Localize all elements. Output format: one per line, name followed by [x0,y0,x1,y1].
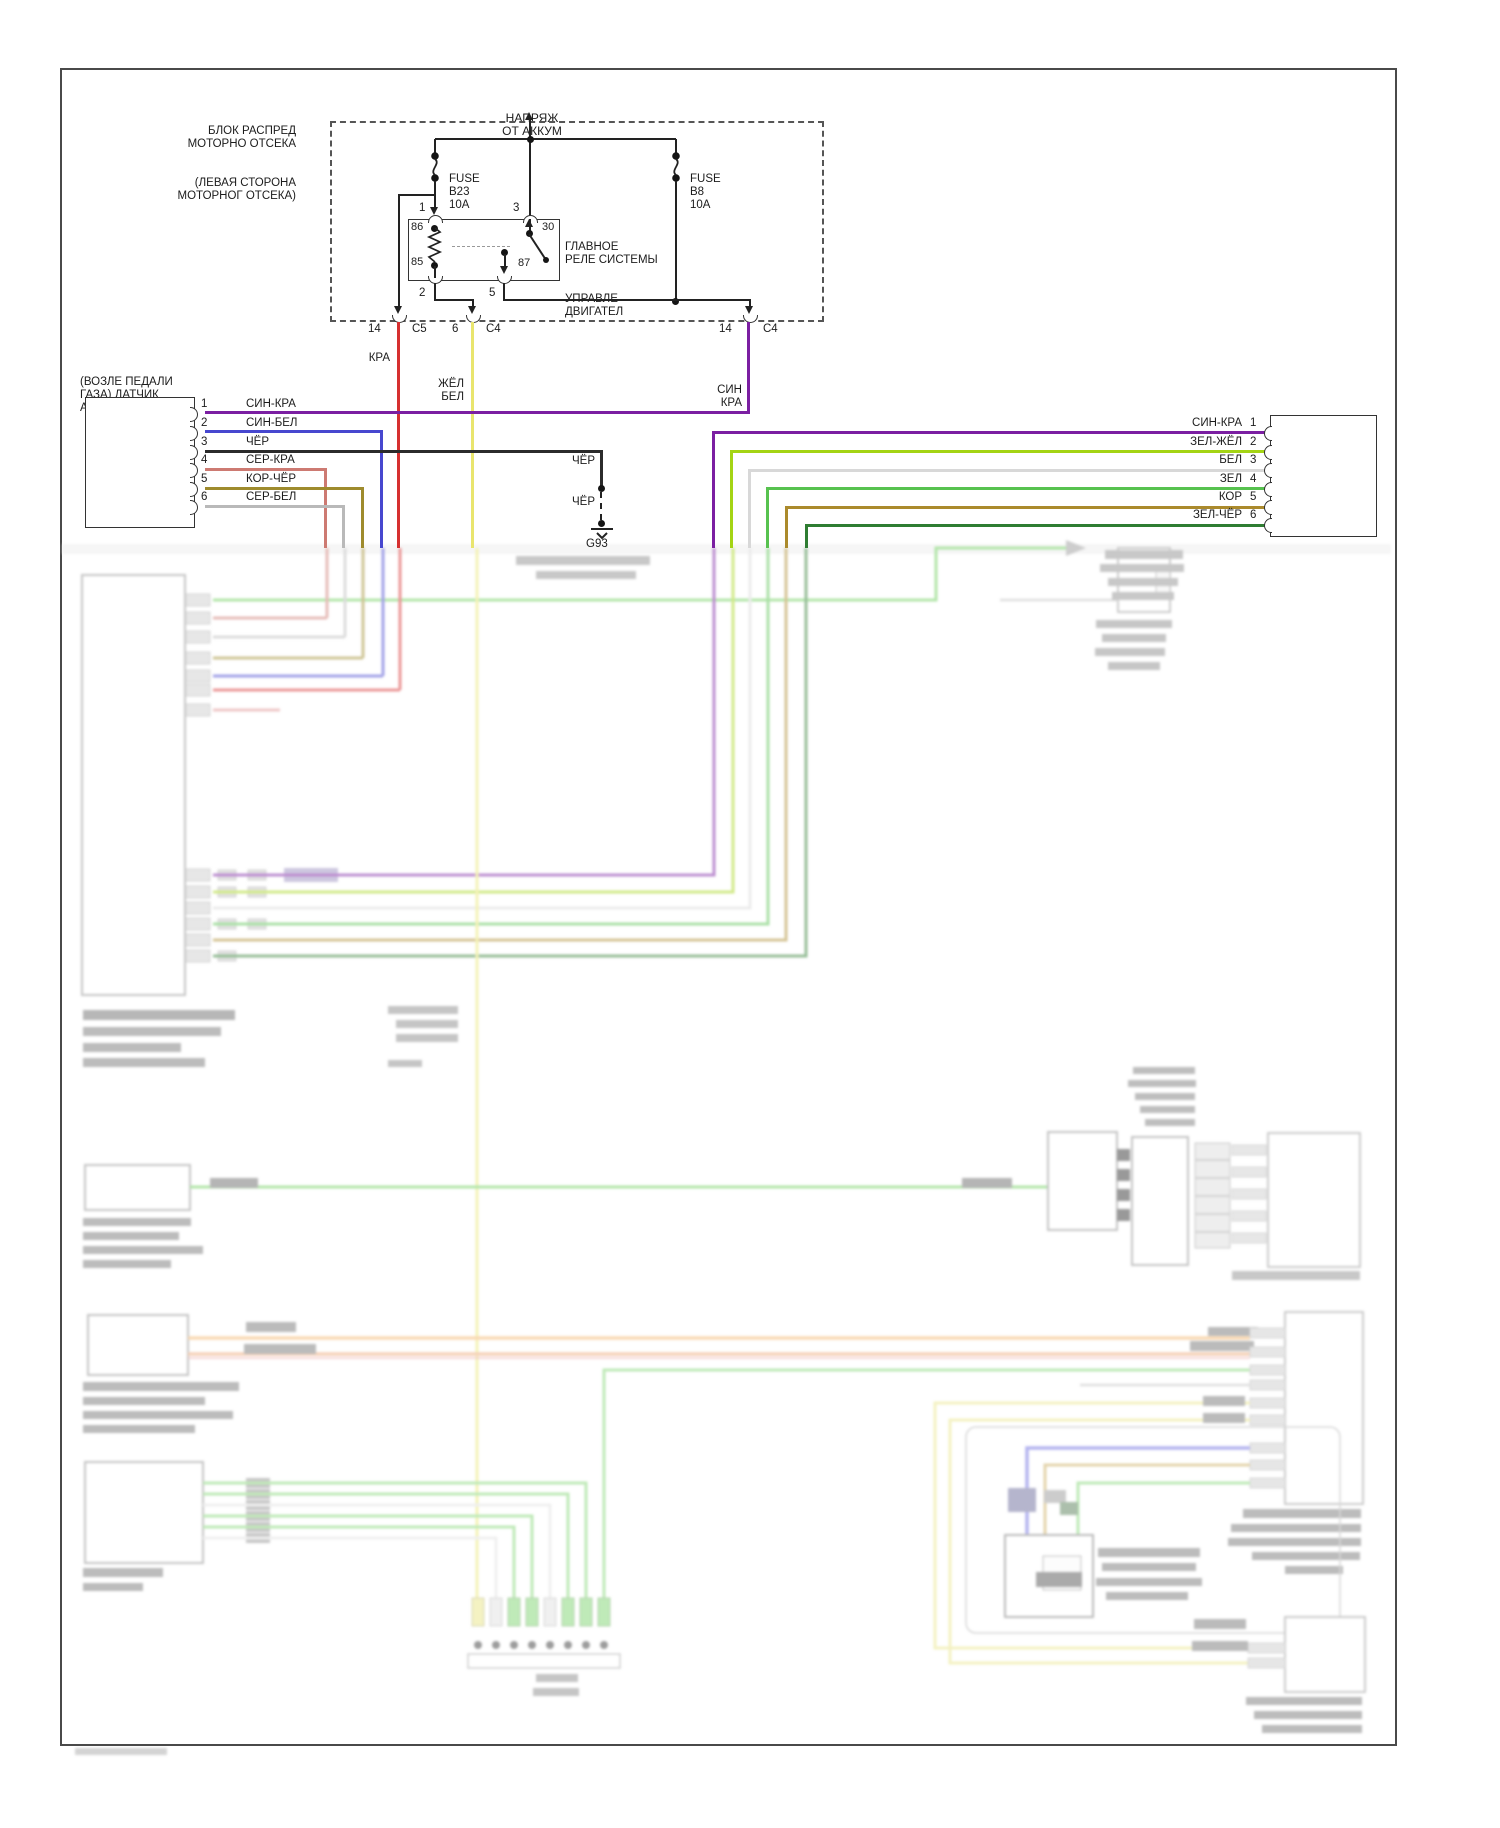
ground-junction-dot [598,485,605,492]
relay-pin3-number: 3 [513,202,519,215]
datch-label-blurred [1128,1067,1196,1126]
ground-id: G93 [586,538,608,551]
inline-module [1000,540,1172,670]
wiring-diagram-page: НАПРЯЖОТ АККУМ БЛОК РАСПРЕДМОТОРНО ОТСЕК… [0,0,1500,1828]
ecm-pin5-arc [1264,500,1272,515]
ground-dashed-wire [600,492,602,520]
wire-label-zhel-bel: ЖЁЛБЕЛ [408,352,464,430]
accel-pin6-label: СЕР-БЕЛ [246,491,296,504]
accel-pin5-n: 5 [201,473,207,486]
relay-86-label: 86 [411,221,423,234]
ecm-pin2-arc [1264,445,1272,460]
wire-sin-kra-purple-v [747,322,750,414]
arrow-up-battery [525,112,533,120]
orange-sensor-chain [83,1315,1258,1433]
mid-sensor-chain [83,1067,1360,1280]
ecm-pin4-arc [1264,482,1272,497]
accel-pin2-label: СИН-БЕЛ [246,417,297,430]
ecm-pin6-arc [1264,518,1272,533]
wire-ser-bel [205,505,345,508]
ecm-pin2-n: 2 [1250,436,1256,449]
ground-wire-label-2: ЧЁР [540,496,595,509]
c4b-pin: 14 [719,323,732,336]
relay-pin1 [428,215,443,223]
accel-pin6-n: 6 [201,491,207,504]
ecm-pin3-arc [1264,463,1272,478]
accel-pin5-label: КОР-ЧЁР [246,473,296,486]
fuse-b8-icon [668,152,685,182]
wire-zhel-bel-yellow [471,322,474,548]
relay-85-label: 85 [411,256,423,269]
bottom-right-box [1192,1617,1365,1733]
wire-sin-bel [205,430,383,433]
arrow-down-c4a [468,306,476,314]
ground-label-blurred [516,556,650,579]
sensor-box [1005,1535,1202,1617]
ecm-pin5-label: КОР [1176,491,1242,504]
arrow-down-pin1 [430,207,438,215]
ecm-pin4-label: ЗЕЛ [1176,473,1242,486]
wire-zel-zhel [730,450,1270,453]
ecm-pin3-label: БЕЛ [1176,454,1242,467]
green-bundle-chain [83,1462,586,1598]
ecm-wires-group2 [213,548,806,956]
arrow-down-c4b [745,306,753,314]
relay-pin2-number: 2 [419,287,425,300]
c4a-name: C4 [486,323,501,336]
ecm-wires-group1 [213,548,1066,710]
accel-pin4-n: 4 [201,454,207,467]
c4b-name: C4 [763,323,778,336]
relay-87-label: 87 [518,257,530,270]
ecm-pin2-label: ЗЕЛ-ЖЁЛ [1176,436,1242,449]
arrow-down-c5 [394,306,402,314]
accel-sensor-box [85,397,195,528]
arrow-up-30 [525,219,533,227]
ecm-pin1-arc [1264,426,1272,441]
ecm-pin1-label: СИН-КРА [1176,417,1242,430]
accel-pin4-label: СЕР-КРА [246,454,295,467]
relay-name: ГЛАВНОЕРЕЛЕ СИСТЕМЫ УПРАВЛЕДВИГАТЕЛ [565,215,658,345]
power-distribution-label: БЛОК РАСПРЕДМОТОРНО ОТСЕКА (ЛЕВАЯ СТОРОН… [168,99,296,229]
relay-pin5-number: 5 [489,287,495,300]
fuse-b8-label: FUSEB810A [690,147,721,238]
c4a-pin: 6 [452,323,458,336]
ecm-label-blurred [83,1010,235,1067]
footer-note-blurred [75,1748,167,1755]
wash-boundary-band [62,544,1391,554]
legend-blurred [388,1006,458,1067]
ecm-pin1-n: 1 [1250,417,1256,430]
wire-kor-cher [205,487,364,490]
accel-pin1-label: СИН-КРА [246,398,296,411]
relay-coil-icon [424,228,446,264]
ground-wire-label-1: ЧЁР [540,455,595,468]
accel-pin2-n: 2 [201,417,207,430]
ecm-pin4-n: 4 [1250,473,1256,486]
arrow-down-87 [500,266,508,274]
wire-label-kra: КРА [336,352,390,365]
wire-zel [766,487,1270,490]
relay-pin1-number: 1 [419,202,425,215]
wire-sin-kra-purple-h [205,411,750,414]
wire-zel-cher [805,524,1270,527]
wire-cher [205,450,602,453]
ecm-pin5-n: 5 [1250,491,1256,504]
accel-pin1-n: 1 [201,398,207,411]
ecm-connector-box [1270,415,1377,537]
accel-pin3-label: ЧЁР [246,436,269,449]
right-module-block [1080,1312,1363,1574]
wire-bel [748,469,1270,472]
accel-pin3-n: 3 [201,436,207,449]
ecm-pin6-label: ЗЕЛ-ЧЁР [1176,509,1242,522]
wire-sin-kra-2 [712,431,1270,434]
wire-kra-red [397,322,400,548]
fuse-b23-icon [427,152,444,182]
ecm-pin3-n: 3 [1250,454,1256,467]
wire-ser-kra [205,468,327,471]
ecm-pin6-n: 6 [1250,509,1256,522]
junction-dot [527,136,534,143]
c5-name: C5 [412,323,427,336]
c5-pin: 14 [368,323,381,336]
wire-label-sin-kra: СИНКРА [686,358,742,436]
relay-coil-link [452,246,510,247]
